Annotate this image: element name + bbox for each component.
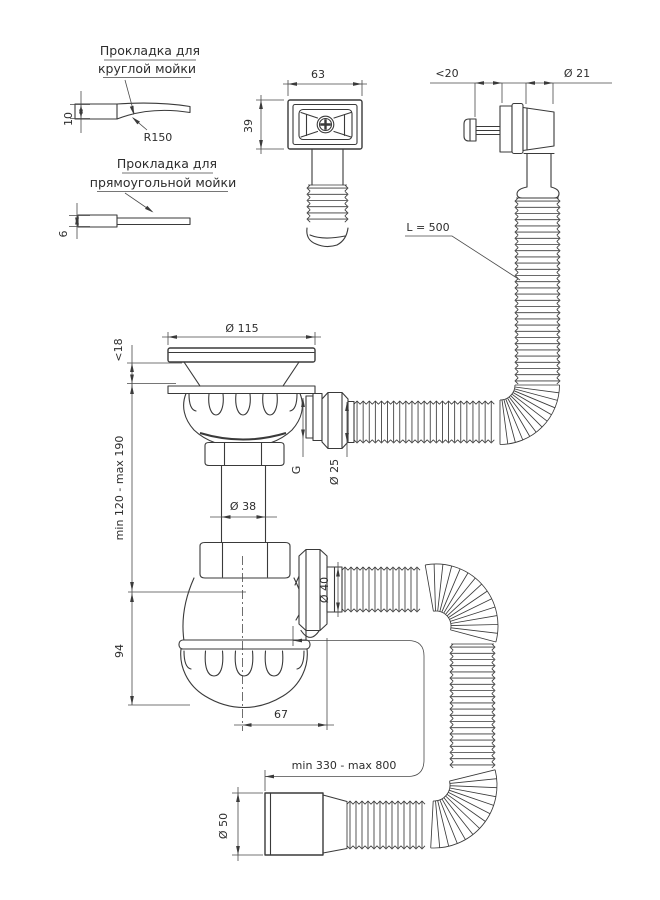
dimension-arrow (236, 846, 240, 855)
hose-length-label: L = 500 (406, 221, 449, 234)
gasket-rect-label-line1: Прокладка для (117, 156, 217, 171)
dim-outlet-offset: 67 (274, 708, 288, 721)
dim-overflow-hose-dia: Ø 25 (328, 459, 341, 485)
dimension-arrow (353, 82, 362, 86)
dimension-arrow (259, 140, 263, 149)
dim-end-fitting-dia: Ø 50 (217, 813, 230, 839)
dimension-arrow (130, 593, 134, 602)
dimension-arrow (130, 363, 134, 372)
technical-drawing-sheet: Прокладка для круглой мойки R150 Проклад… (0, 0, 660, 900)
dimension-arrow (259, 100, 263, 109)
gasket-rect-label-line2: прямоугольной мойки (90, 175, 236, 190)
overflow-hose (354, 198, 560, 445)
gasket-round-label-line2: круглой мойки (98, 61, 196, 76)
dimension-arrow (130, 375, 134, 384)
dimension-arrow (257, 515, 266, 519)
dimension-arrow (544, 81, 553, 85)
dim-sink-thickness: <18 (112, 338, 125, 361)
radius-label: R150 (144, 131, 173, 144)
dimension-arrow (243, 723, 252, 727)
dimension-arrow (493, 81, 502, 85)
dim-overflow-pipe-dia: Ø 21 (564, 67, 590, 80)
sink-strainer (168, 348, 354, 449)
dimension-arrow (301, 430, 305, 439)
dim-clamp-range: <20 (435, 67, 458, 80)
dim-cover-width: 63 (311, 68, 325, 81)
dimension-arrow (265, 775, 274, 779)
dim-tailpipe-dia: Ø 38 (230, 500, 256, 513)
dim-gasket-rect-thickness: 6 (57, 231, 70, 238)
cup-collar (179, 640, 310, 649)
dimension-arrow (168, 335, 177, 339)
dim-outlet-hose-range: min 330 - max 800 (292, 759, 397, 772)
dimension-arrow (145, 206, 154, 213)
gasket-rect-section (78, 215, 190, 227)
overflow-cover (288, 100, 362, 247)
dimension-arrow (306, 335, 315, 339)
dim-cover-height: 39 (242, 119, 255, 133)
dimension-arrow (318, 723, 327, 727)
dim-thread: G (290, 466, 303, 475)
dimension-arrow (130, 385, 134, 394)
siphon-body-group (179, 443, 342, 708)
body-nut (200, 543, 290, 579)
dimension-arrow (130, 582, 134, 591)
overflow-elbow (464, 104, 559, 199)
dimension-arrow (130, 696, 134, 705)
dimension-arrow (475, 81, 484, 85)
siphon-cup (181, 649, 308, 708)
dim-height-range: min 120 - max 190 (113, 436, 126, 541)
tailpipe-nut (205, 443, 284, 466)
gasket-round-label-line1: Прокладка для (100, 43, 200, 58)
strainer-flange (168, 348, 315, 362)
dimension-arrow (236, 793, 240, 802)
dimension-arrow (526, 81, 535, 85)
siphon-assembly-drawing: Прокладка для круглой мойки R150 Проклад… (0, 0, 660, 900)
dimension-arrow (288, 82, 297, 86)
sink-plate (168, 386, 315, 394)
dim-strainer-dia: Ø 115 (225, 322, 258, 335)
outlet-hose (342, 564, 498, 849)
end-fitting (265, 793, 347, 855)
dim-gasket-round-thickness: 10 (62, 112, 75, 126)
overflow-outlet-nut (322, 393, 348, 449)
dim-body-height: 94 (113, 644, 126, 658)
dim-outlet-hose-dia: Ø 40 (318, 577, 331, 603)
dimension-arrow (222, 515, 231, 519)
